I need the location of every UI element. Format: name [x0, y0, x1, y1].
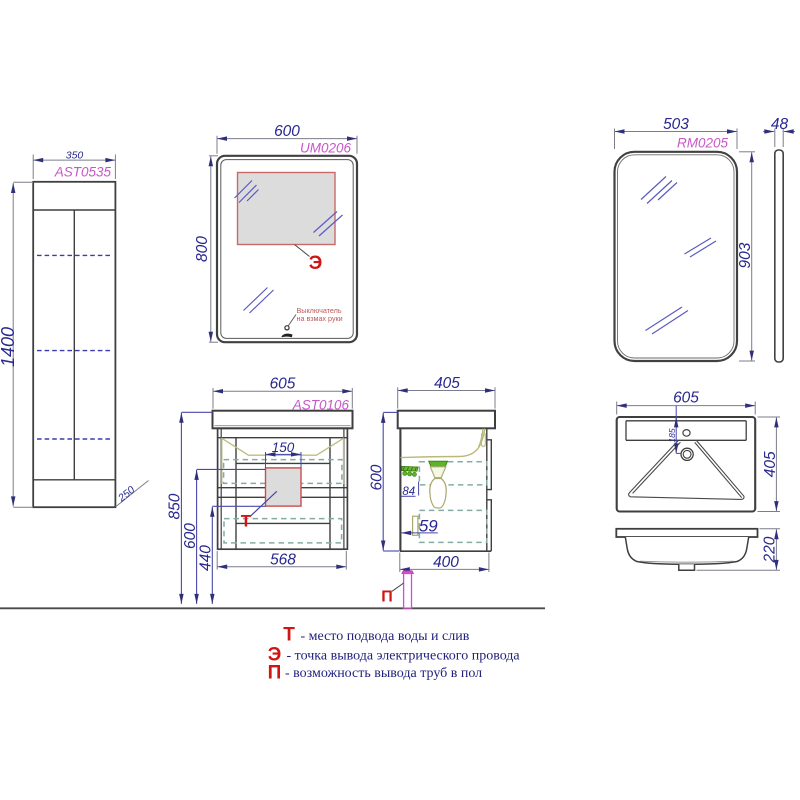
svg-text:П: П: [381, 589, 393, 606]
svg-text:на взмах руки: на взмах руки: [297, 314, 343, 323]
svg-text:П: П: [268, 663, 282, 684]
svg-text:RM0205: RM0205: [677, 135, 729, 150]
svg-text:405: 405: [762, 451, 779, 477]
svg-text:903: 903: [737, 242, 754, 268]
svg-text:605: 605: [270, 376, 296, 393]
svg-text:605: 605: [673, 390, 699, 407]
svg-text:UM0206: UM0206: [300, 141, 352, 156]
svg-text:220: 220: [762, 536, 779, 563]
svg-text:503: 503: [663, 116, 689, 133]
svg-text:84: 84: [402, 486, 415, 498]
svg-text:400: 400: [433, 554, 459, 571]
svg-text:1400: 1400: [0, 327, 18, 367]
svg-text:Т: Т: [241, 511, 252, 530]
svg-text:800: 800: [194, 236, 211, 262]
svg-text:185: 185: [667, 428, 677, 442]
svg-text:405: 405: [434, 375, 460, 392]
svg-text:600: 600: [274, 123, 300, 140]
svg-text:Т: Т: [283, 625, 295, 646]
svg-text:59: 59: [419, 517, 438, 536]
svg-text:- место подвода воды и слив: - место подвода воды и слив: [301, 629, 470, 644]
svg-text:600: 600: [182, 523, 199, 549]
svg-text:- возможность вывода труб в по: - возможность вывода труб в пол: [285, 666, 482, 681]
svg-text:- точка вывода электрического: - точка вывода электрического провода: [287, 649, 521, 664]
svg-text:568: 568: [270, 552, 296, 569]
svg-text:440: 440: [198, 545, 215, 571]
svg-text:AST0106: AST0106: [292, 397, 350, 412]
svg-text:48: 48: [771, 116, 789, 133]
svg-text:AST0535: AST0535: [54, 165, 112, 180]
svg-text:850: 850: [167, 493, 184, 519]
svg-text:150: 150: [272, 440, 295, 455]
svg-text:600: 600: [368, 464, 385, 490]
svg-text:350: 350: [66, 149, 84, 161]
svg-text:Э: Э: [309, 253, 323, 274]
